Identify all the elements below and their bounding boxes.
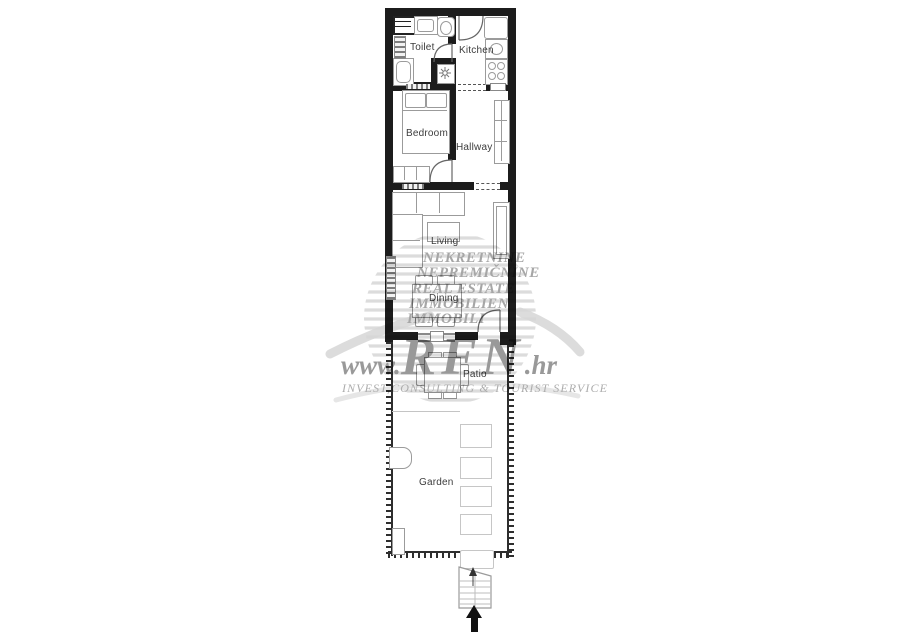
door-arc-dining-icon [478,310,500,332]
entrance-arrow-icon [466,605,482,632]
room-label-garden: Garden [419,477,454,488]
floor-plan-page: Toilet Kitchen Bedroom Hallway Living Di… [0,0,900,637]
room-label-hallway: Hallway [456,142,492,153]
room-label-dining: Dining [429,293,459,304]
room-label-kitchen: Kitchen [459,45,494,56]
plan-overlay [0,0,900,637]
door-arc-bedroom-icon [430,160,452,182]
room-label-living: Living [431,236,458,247]
door-arc-kitchen-icon [459,16,483,40]
room-label-toilet: Toilet [410,42,435,53]
room-label-patio: Patio [463,369,487,380]
door-arc-toilet-icon [434,44,452,62]
room-label-bedroom: Bedroom [406,128,448,139]
extractor-fan-icon [439,67,451,79]
entry-stairs [459,567,491,608]
